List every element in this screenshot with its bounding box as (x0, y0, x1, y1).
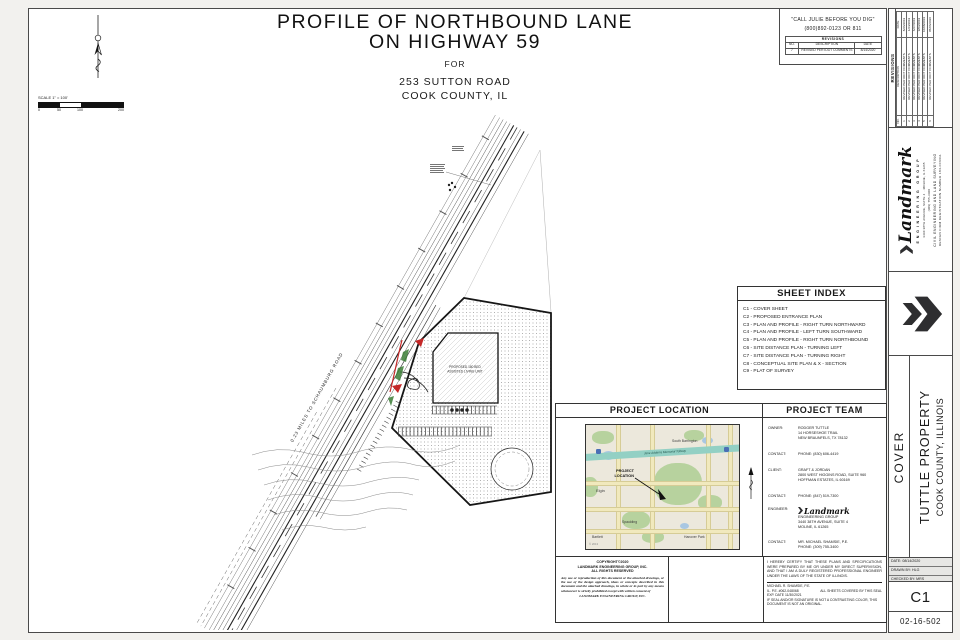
interstate-shield-icon (596, 449, 601, 454)
call-note-line1: "CALL JULIE BEFORE YOU DIG" (780, 16, 886, 25)
landmark-chevron-icon (798, 507, 803, 514)
sheet-name-cell: COVER TUTTLE PROPERTY COOK COUNTY, ILLIN… (889, 355, 952, 558)
landmark-logo-block: Landmark ENGINEERING GROUP 3440 38TH AVE… (889, 128, 951, 272)
sheet-index-list: C1 - COVER SHEET C2 - PROPOSED ENTRANCE … (738, 301, 885, 376)
title-line-2: ON HIGHWAY 59 (230, 32, 680, 52)
sheet-index-item: C7 - SITE DISTANCE PLAN - TURNING RIGHT (743, 353, 883, 361)
map-town: South Barrington (672, 439, 697, 443)
sheet-index-item: C5 - PLAN AND PROFILE - RIGHT TURN NORTH… (743, 337, 883, 345)
copyright-panel: COPYRIGHT©2020 LANDMARK ENGINEERING GROU… (555, 556, 670, 623)
seal-disclaimer: IF SEAL AND/OR SIGNATURE IS NOT A CONTRA… (767, 598, 882, 607)
sheet-index-item: C4 - PLAN AND PROFILE - LEFT TURN SOUTHW… (743, 329, 883, 337)
title-address: 253 SUTTON ROAD (230, 76, 680, 90)
firm-city: MOLINE, IL 61265 (922, 162, 926, 189)
engineering-cover-sheet: { "title": { "line1": "PROFILE OF NORTHB… (0, 0, 960, 640)
landmark-logo-small: Landmark (798, 507, 850, 514)
team-row-contact: CONTACT: PHONE: (830) 606-4419 (768, 452, 882, 457)
date-row: DATE: 08/14/2020 (889, 558, 952, 567)
sheet-title: PROFILE OF NORTHBOUND LANE ON HIGHWAY 59… (230, 12, 680, 103)
signature-block: MICHAEL R. SHAMSIE, P.E. IL. P.E. #062-0… (767, 582, 882, 607)
call-before-dig-box: "CALL JULIE BEFORE YOU DIG" (800)892-012… (779, 9, 886, 65)
landscape-band (358, 402, 398, 472)
copyright-line3: ALL RIGHTS RESERVED (556, 569, 669, 574)
sheet-index-panel: SHEET INDEX C1 - COVER SHEET C2 - PROPOS… (737, 286, 886, 390)
building-label-1: PROPOSED 180 BED (449, 365, 481, 369)
firm-address: 3440 38TH AVENUE, SUITE 4 (922, 194, 926, 238)
team-row-engineer: ENGINEER: Landmark ENGINEERING GROUP 344… (768, 507, 882, 529)
double-chevron-logo-icon (897, 292, 945, 336)
title-for: FOR (230, 60, 680, 69)
project-location-callout: PROJECT LOCATION (600, 469, 634, 478)
title-block: REVISIONS NO. DESCRIPTION DATE 1 REVISED… (888, 8, 953, 633)
map-town: Elgin (596, 488, 605, 493)
tollway-band: Jane Addams Memorial Tollway (585, 444, 740, 461)
team-row-contact: CONTACT: MR. MICHAEL SHAMSIE, P.E. PHONE… (768, 540, 882, 550)
project-location-title: PROJECT LOCATION (556, 404, 763, 418)
firm-subtitle: ENGINEERING GROUP (916, 157, 920, 244)
drawn-by-row: DRAWN BY: HLG (889, 567, 952, 576)
certification-paragraph: I HEREBY CERTIFY THAT THESE PLANS AND SP… (763, 557, 886, 579)
detention-pond (491, 448, 533, 490)
sheet-title-cover: COVER (892, 431, 906, 484)
scale-label: SCALE 1" = 100' (38, 95, 138, 100)
revisions-side-table: NO. DESCRIPTION DATE 1 REVISED PER IDOT … (896, 11, 934, 127)
revisions-side-cell: REVISIONS NO. DESCRIPTION DATE 1 REVISED… (889, 9, 952, 127)
map-town: Hanover Park (684, 535, 705, 539)
project-number: 02-16-502 (900, 617, 941, 626)
sheet-index-item: C1 - COVER SHEET (743, 306, 883, 314)
map-town: Spaulding (622, 520, 637, 524)
annotation-callouts (430, 146, 491, 191)
title-county: COOK COUNTY, IL (230, 90, 680, 104)
revisions-table-top: REVISIONS NO. DESCRIPTION DATE 7 REVISED… (785, 36, 882, 55)
copyright-paragraph: Any use or reproduction of this document… (561, 576, 664, 593)
location-pointer (634, 475, 670, 503)
map-town: Bartlett (592, 535, 603, 539)
landmark-chevron-icon (900, 245, 913, 254)
firm-services: CIVIL ENGINEERING AND LAND SURVEYING (933, 153, 937, 246)
project-team-title: PROJECT TEAM (763, 404, 886, 418)
map-copyright: © 2013 (589, 542, 598, 546)
sheet-index-title: SHEET INDEX (738, 287, 885, 301)
scale-tick-labels: 0 50 100 200 (38, 108, 122, 114)
firm-block-cell: Landmark ENGINEERING GROUP 3440 38TH AVE… (889, 127, 952, 272)
project-number-cell: 02-16-502 (889, 611, 952, 631)
project-county: COOK COUNTY, ILLINOIS (935, 398, 945, 516)
scale-bar: SCALE 1" = 100' 0 50 100 200 (38, 95, 138, 114)
project-name: TUTTLE PROPERTY (918, 390, 932, 524)
sheet-index-item: C9 - PLAT OF SURVEY (743, 368, 883, 376)
team-row-contact: CONTACT: PHONE: (847) 519-7300 (768, 494, 882, 499)
call-note-line2: (800)892-0123 OR 811 (780, 25, 886, 34)
firm-registration: DESIGN FIRM REGISTRATION NUMBER 184-0033… (938, 154, 942, 246)
sheet-number-cell: C1 (889, 581, 952, 612)
project-location-panel: PROJECT LOCATION Jane Addams Memorial To… (555, 403, 764, 558)
plan-graphics: PROPOSED 180 BED ASSISTED LIVING UNIT (197, 115, 551, 640)
map-north-arrow-icon (745, 466, 757, 502)
seal-area (668, 556, 764, 623)
certification-panel: I HEREBY CERTIFY THAT THESE PLANS AND SP… (762, 556, 887, 623)
revision-row: 7 REVISED PER IDOT COMMENTS 8/14/2020 (785, 48, 881, 54)
revision-row: 6 REVISED PER IDOT COMMENTS 05/06/2020 (928, 12, 933, 127)
team-row-client: CLIENT: GRAFT & JORDAN 2800 WEST HIGGINS… (768, 468, 882, 482)
seal-note: ALL SHEETS COVERED BY THIS SEAL (820, 589, 882, 593)
sheet-index-item: C6 - SITE DISTANCE PLAN - TURNING LEFT (743, 345, 883, 353)
north-arrow-icon (86, 12, 110, 82)
info-rows-cell: DATE: 08/14/2020 DRAWN BY: HLG CHECKED B… (889, 557, 952, 582)
firm-name: Landmark (898, 146, 915, 243)
sheet-index-item: C2 - PROPOSED ENTRANCE PLAN (743, 314, 883, 322)
building-label-2: ASSISTED LIVING UNIT (447, 370, 482, 374)
sheet-number: C1 (910, 589, 930, 606)
sheet-index-item: C3 - PLAN AND PROFILE - RIGHT TURN NORTH… (743, 322, 883, 330)
team-row-owner: OWNER: RODGER TUTTLE 14 HORSESHOE TRAIL … (768, 426, 882, 440)
location-map: Jane Addams Memorial Tollway PROJECT LOC… (585, 424, 740, 550)
sheet-index-item: C8 - CONCEPTUAL SITE PLAN & X - SECTION (743, 361, 883, 369)
road-distance-label: 0.23 MILES TO SCHAUMBURG ROAD (289, 352, 344, 443)
chevron-logo-cell (889, 271, 952, 356)
title-line-1: PROFILE OF NORTHBOUND LANE (230, 12, 680, 32)
firm-phone: (309) 755-3400 (927, 189, 931, 212)
project-team-panel: PROJECT TEAM OWNER: RODGER TUTTLE 14 HOR… (762, 403, 887, 558)
interstate-shield-icon (724, 447, 729, 452)
copyright-company: LANDMARK ENGINEERING GROUP, INC. (556, 594, 669, 598)
